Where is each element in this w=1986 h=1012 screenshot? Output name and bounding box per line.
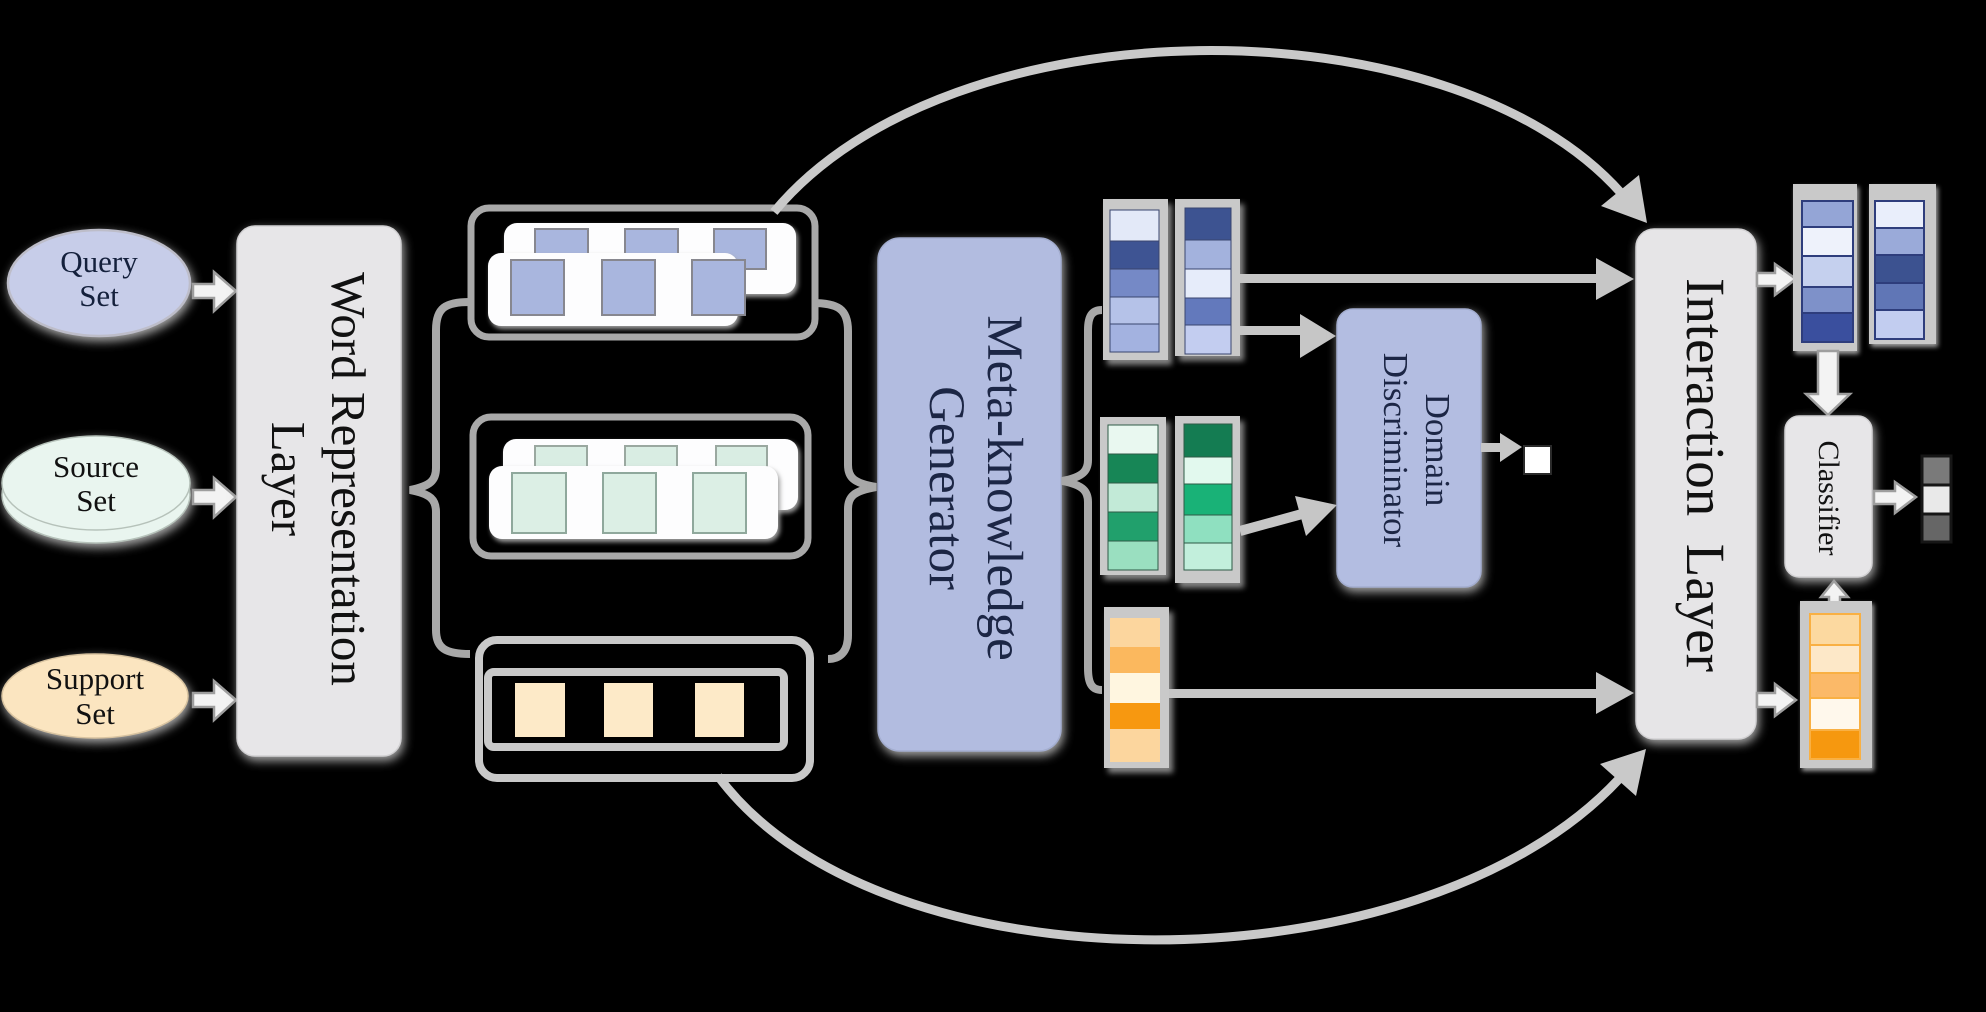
svg-text:Interaction Layer: Interaction Layer bbox=[1675, 278, 1736, 672]
svg-text:Domain: Domain bbox=[1418, 394, 1457, 507]
svg-text:Classifier: Classifier bbox=[1812, 441, 1845, 556]
svg-text:Set: Set bbox=[76, 483, 116, 518]
svg-text:Generator: Generator bbox=[918, 386, 974, 590]
svg-text:Query: Query bbox=[60, 244, 138, 279]
svg-text:Support: Support bbox=[46, 661, 145, 696]
svg-text:Source: Source bbox=[53, 449, 139, 484]
svg-text:Meta-knowledge: Meta-knowledge bbox=[976, 315, 1032, 661]
svg-text:Set: Set bbox=[79, 278, 119, 313]
svg-text:Set: Set bbox=[75, 696, 115, 731]
svg-text:Discriminator: Discriminator bbox=[1376, 353, 1415, 548]
svg-text:Word Representation: Word Representation bbox=[321, 272, 376, 686]
svg-text:Layer: Layer bbox=[261, 422, 316, 536]
